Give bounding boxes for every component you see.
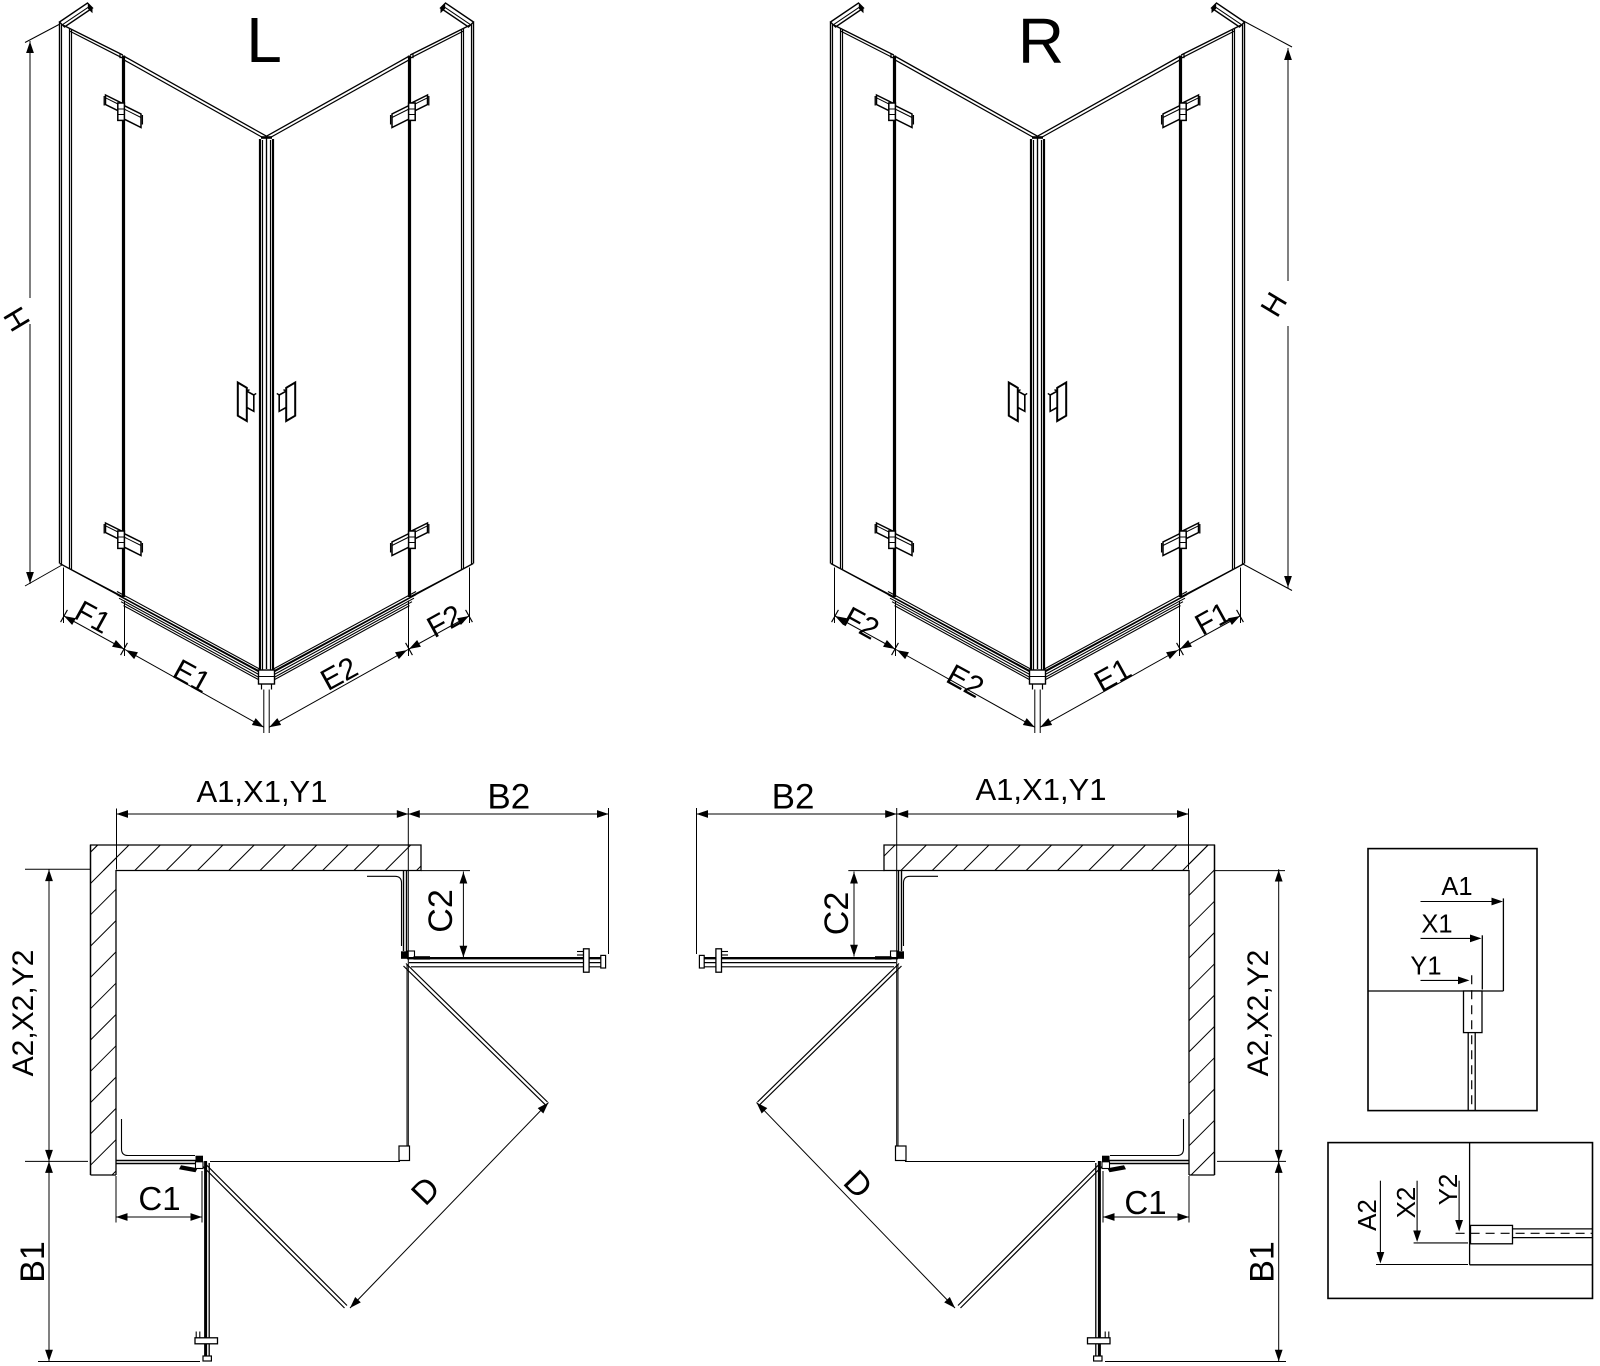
svg-text:A1,X1,Y1: A1,X1,Y1 <box>976 772 1107 807</box>
svg-text:A2,X2,Y2: A2,X2,Y2 <box>1242 950 1275 1077</box>
svg-text:Y2: Y2 <box>1433 1174 1463 1206</box>
svg-text:B2: B2 <box>487 778 530 817</box>
svg-text:Y1: Y1 <box>1410 953 1441 981</box>
svg-text:C2: C2 <box>422 889 460 932</box>
svg-text:B1: B1 <box>1243 1241 1281 1283</box>
svg-text:L: L <box>246 4 282 76</box>
svg-text:A2,X2,Y2: A2,X2,Y2 <box>7 950 40 1077</box>
svg-text:B2: B2 <box>772 778 815 817</box>
svg-text:A1: A1 <box>1441 873 1472 901</box>
svg-text:X1: X1 <box>1421 911 1452 939</box>
svg-text:R: R <box>1018 5 1064 77</box>
svg-text:B1: B1 <box>14 1241 52 1283</box>
svg-text:C1: C1 <box>1124 1184 1166 1221</box>
svg-text:A2: A2 <box>1352 1199 1382 1231</box>
svg-text:A1,X1,Y1: A1,X1,Y1 <box>197 774 328 809</box>
svg-text:X2: X2 <box>1391 1187 1421 1219</box>
svg-text:C1: C1 <box>138 1180 180 1217</box>
svg-text:C2: C2 <box>818 892 856 935</box>
